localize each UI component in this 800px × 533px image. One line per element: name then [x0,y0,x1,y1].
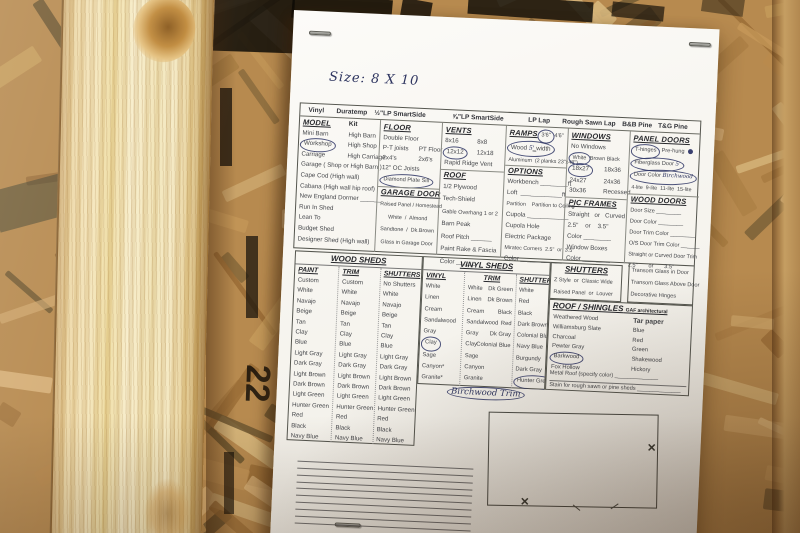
right-wall-edge [772,0,800,533]
window-color: Brown [590,155,606,162]
floor-plan-sketch: ✕ ✕ [487,412,659,509]
garage-door-option: Glass in Garage Door [378,236,435,251]
floor-option: P-T joists [383,144,409,152]
vent-option: 12x18 [476,148,493,159]
model-option: Cabana (High wall hip roof) [300,182,375,192]
siding-option: ⅝"LP SmartSide [452,113,504,122]
sketch-x-mark: ✕ [520,497,529,507]
model-option: Run In Shed [299,203,334,212]
shingle-color-list-left: Weathered WoodWilliamsburg SlateCharcoal… [551,313,602,375]
wood-doors-header: WOOD DOORS [631,194,687,206]
shed-order-form: Size: 8 X 10 Vinyl Duratemp ½"LP SmartSi… [269,10,720,533]
vinyl-list: WhiteLinenCreamSandalwoodGrayClaySageCan… [421,281,464,386]
handwritten-size-note: Size: 8 X 10 [329,70,420,89]
window-size: 30x36 [569,187,586,195]
handwritten-door-color: Birchwood [662,173,693,180]
model-option: Lean To [298,214,320,222]
list-item: Navy Blue [376,435,414,446]
vinyl-shutters-column: SHUTTERS WhiteRedBlackDark BrownColonial… [511,274,550,389]
siding-option: B&B Pine [622,121,652,129]
list-item: Hunter Green [515,376,545,390]
roof-header: ROOF [444,169,467,179]
pic-frames-header: PIC FRAMES [568,198,617,209]
siding-option: ½"LP SmartSide [374,110,426,119]
vents-column: VENTS 8x168x8 12x1212x18 Rapid Ridge Ven… [436,123,506,258]
panel-doors-column: PANEL DOORS T-hinges Pre-hung Fiberglass… [624,131,702,266]
photo-scene: 22 Size: 8 X 10 Vinyl Duratemp ½"LP Smar… [0,0,800,533]
door-color-label: Door Color [634,172,661,179]
gaf-label: GAF architectural [625,307,667,315]
window-color: Black [606,156,619,163]
floor-option: Double Floor [383,134,419,143]
model-option: Garage ( Shop or High Barn ) [301,161,382,172]
window-size: 24x27 [569,176,586,184]
osb-print-mark: 22 [237,364,277,403]
staple-icon [309,31,331,36]
vinyl-shutters-list: WhiteRedBlackDark BrownColonial BlueNavy… [514,286,549,390]
vinyl-trim-column: TRIM WhiteLinenCreamSandalwoodGrayClaySa… [459,272,515,388]
list-item: Navy Blue [335,433,373,444]
list-item: Colonial Blue [476,340,511,353]
siding-option: LP Lap [528,117,550,125]
shutters-list: No ShuttersWhiteNavajoBeigeTanClayBlueLi… [376,279,421,446]
floor-header: FLOOR [384,122,412,132]
osb-print-mark [246,236,258,318]
floor-option: 2x6's [418,155,433,166]
ink-mark [687,149,692,154]
vinyl-trim-dark-list: Dk GreenDk BrownBlackRedDk GrayColonial … [476,284,513,353]
vinyl-sheds-section: VINYL SHEDS VINYL WhiteLinenCreamSandalw… [417,256,551,390]
shingle-color-list-right: Tar paperBlueRedGreenShakewoodHickory [631,317,664,377]
osb-strand [0,401,21,427]
vents-header: VENTS [446,125,472,135]
fiberglass-door-label: Fiberglass Door [634,159,674,167]
handwritten-door-size: 5' [675,161,680,167]
siding-option: T&G Pine [658,123,688,131]
model-option: Budget Shed [298,224,334,233]
stain-row: Stain for rough sawn or pine sheds _____… [549,380,686,394]
model-option: Designer Shed (High wall) [297,235,369,245]
list-item: Navy Blue [290,431,331,442]
window-size: 18x36 [604,165,621,176]
ramp-wood-label: Wood [511,144,527,152]
osb-strand [0,46,42,91]
wood-sheds-section: WOOD SHEDS PAINT CustomWhiteNavajoBeigeT… [286,250,422,446]
sketch-tick-mark [573,504,581,510]
model-column: MODELKit Mini BarnHigh Barn WorkshopHigh… [294,116,380,251]
list-item: Red [518,297,548,310]
osb-strand [0,368,53,393]
model-header: MODEL [303,118,331,128]
wood-knot [126,0,203,69]
notes-lines [295,455,474,532]
model-option: Mini Barn [302,129,328,137]
siding-option: Vinyl [308,107,324,115]
options-header: OPTIONS [508,166,544,177]
hinge-option: Pre-hung [661,148,684,155]
vent-option: 8x16 [445,137,459,145]
order-form-table: Vinyl Duratemp ½"LP SmartSide ⅝"LP Smart… [293,102,701,266]
handwritten-ramp-width: 5' [529,145,535,152]
shutters-column: SHUTTERS No ShuttersWhiteNavajoBeigeTanC… [372,268,421,446]
ramps-column: RAMPS 3'6" 4'6" Wood 5'̲̲̲ width Aluminu… [500,126,568,261]
garage-door-header: GARAGE DOOR [381,187,441,199]
ramp-size: 4'6" [554,133,564,139]
vent-option: 8x8 [477,137,487,148]
staple-icon [689,42,711,47]
wood-stud [49,0,214,533]
roof-shingles-section: ROOF / SHINGLES GAF architectural Weathe… [545,299,693,396]
shutter-styles-section: SHUTTERS Z Style or Classic Wide Raised … [549,262,623,302]
ramp-wood-suffix: width [536,145,551,153]
wood-knot [143,478,191,533]
ramps-header: RAMPS [509,128,537,138]
windows-header: WINDOWS [571,131,611,142]
floor-column: FLOOR Double Floor P-T joistsPT Floor 2x… [374,120,442,255]
floor-option: 2x4's [382,154,397,162]
kit-header: Kit [349,120,358,131]
model-option: New England Dormer ______ [299,193,381,204]
vent-option: Rapid Ridge Vent [444,159,492,168]
sketch-x-mark: ✕ [647,443,656,453]
model-option: Carriage [301,150,325,158]
siding-option: Rough Sawn Lap [562,118,616,127]
vinyl-column: VINYL WhiteLinenCreamSandalwoodGrayClayS… [418,270,464,386]
siding-option: Duratemp [336,108,367,116]
window-size: 24x36 [603,177,620,188]
floor-option: 12" OC Joists [382,164,420,173]
sketch-tick-mark [611,503,619,509]
model-option: Cape Cod (High wall) [300,171,359,181]
windows-column: WINDOWS No Windows White Brown Black 18x… [562,129,630,264]
trim-note-text: Birchwood Trim [447,385,525,401]
roof-shingles-header-text: ROOF / SHINGLES [553,301,624,313]
wood-doors-extension: Transom Glass in Door Transom Glass Abov… [627,263,695,305]
